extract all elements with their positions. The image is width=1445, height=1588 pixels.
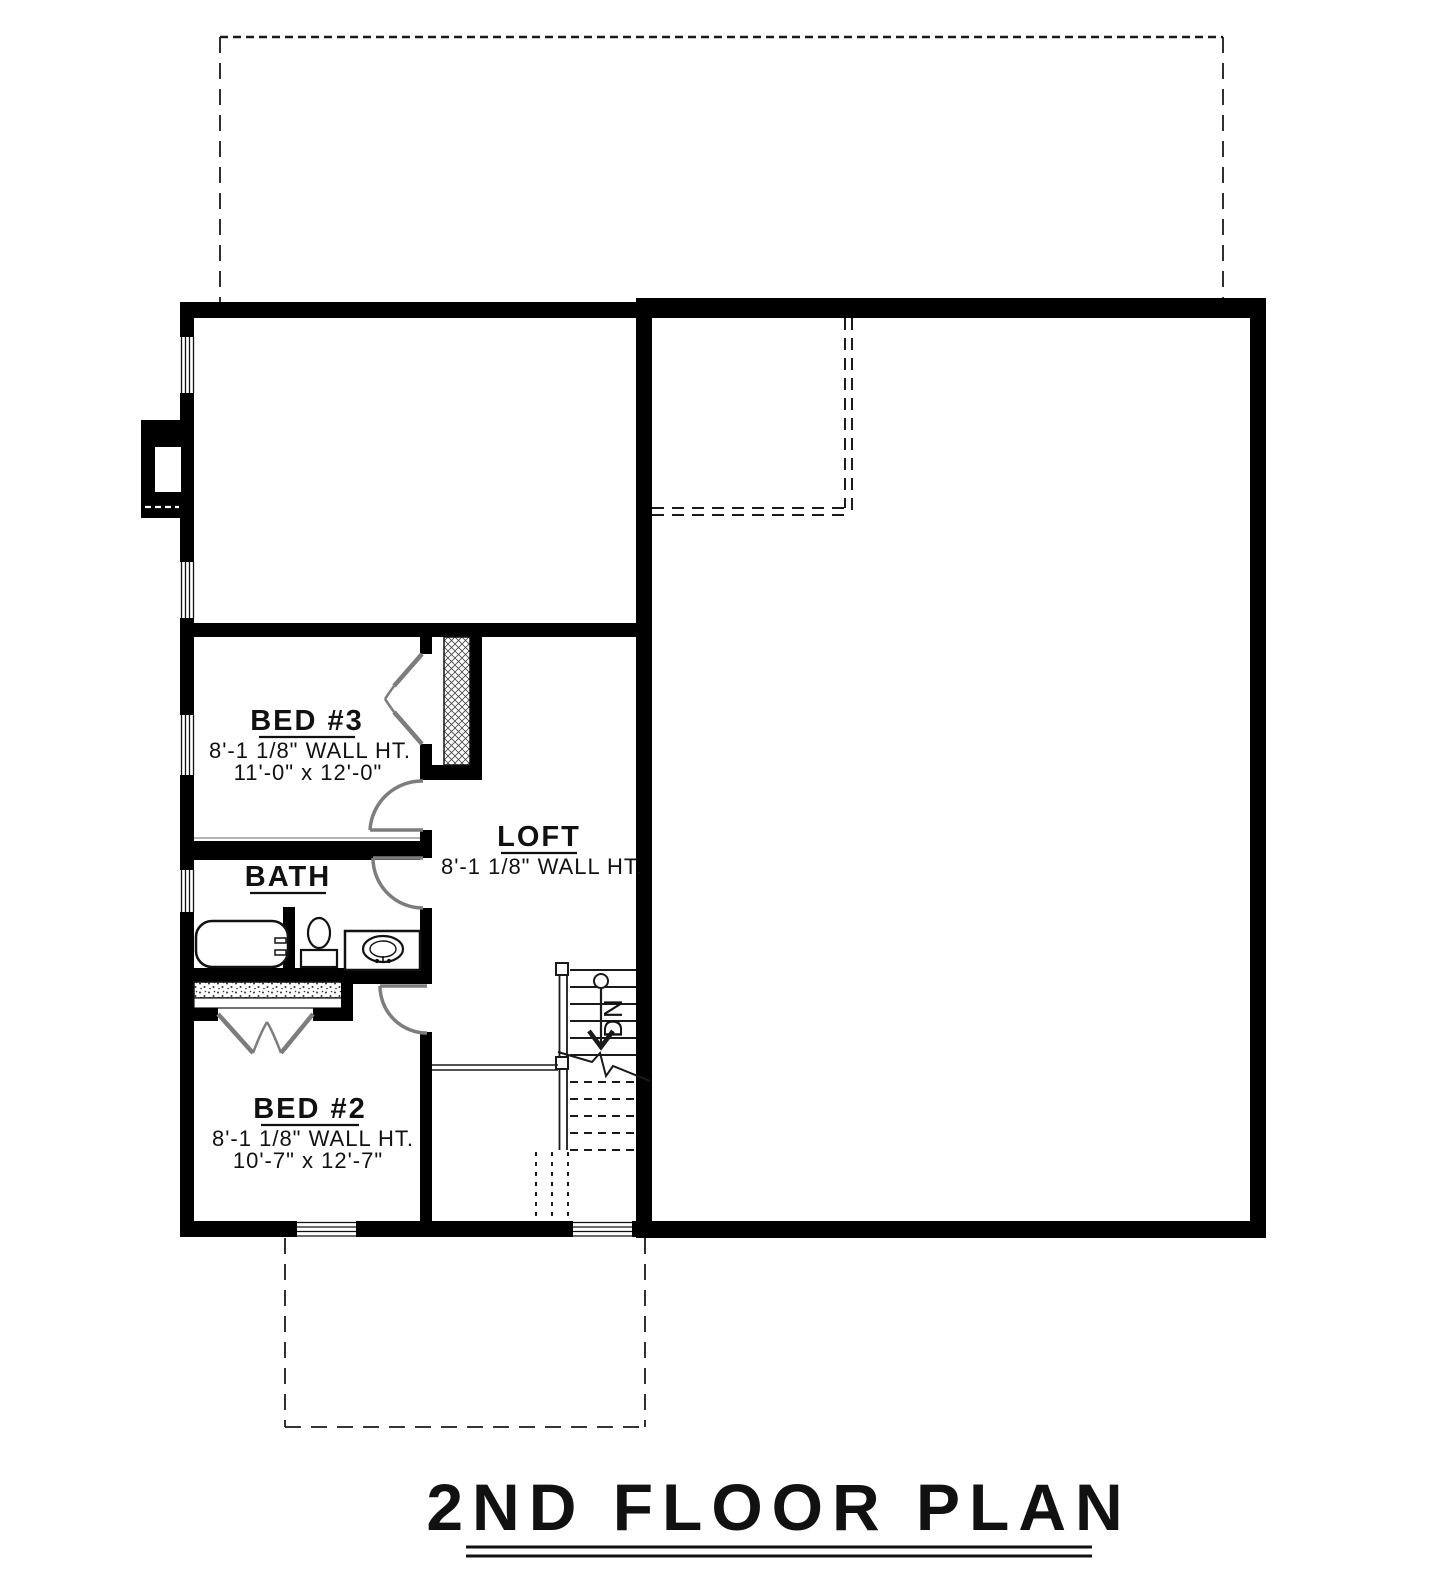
bed3-closet-shelf-hatch	[444, 637, 470, 765]
wall-bed3-north	[194, 623, 652, 637]
wall-loft-divider	[636, 298, 652, 1238]
bed2-closet-shelf-hatch	[194, 982, 344, 998]
stairs-down-label: DN	[598, 998, 628, 1038]
bath-name: BATH	[245, 861, 331, 893]
bed3-dimensions: 11'-0" x 12'-0"	[234, 760, 383, 785]
loft-name: LOFT	[497, 821, 581, 853]
loft-wall-height: 8'-1 1/8" WALL HT.	[441, 854, 643, 879]
bath-label: BATH	[245, 861, 331, 893]
bed2-dimensions: 10'-7" x 12'-7"	[233, 1148, 383, 1173]
bed2-name: BED #2	[253, 1093, 367, 1125]
chimney	[141, 420, 194, 518]
sheet-title: 2ND FLOOR PLAN	[426, 1470, 1131, 1556]
bathtub	[196, 921, 288, 967]
sink-vanity	[345, 931, 420, 970]
stair-newel-top	[556, 963, 568, 975]
floor-plan-drawing: BED #3 8'-1 1/8" WALL HT. 11'-0" x 12'-0…	[0, 0, 1445, 1588]
plan-title-text: 2ND FLOOR PLAN	[426, 1470, 1131, 1544]
stair-newel-bottom	[556, 1057, 568, 1069]
sheet-background	[0, 0, 1445, 1588]
floor-plan-sheet: BED #3 8'-1 1/8" WALL HT. 11'-0" x 12'-0…	[0, 0, 1445, 1588]
bed3-name: BED #3	[250, 705, 364, 737]
